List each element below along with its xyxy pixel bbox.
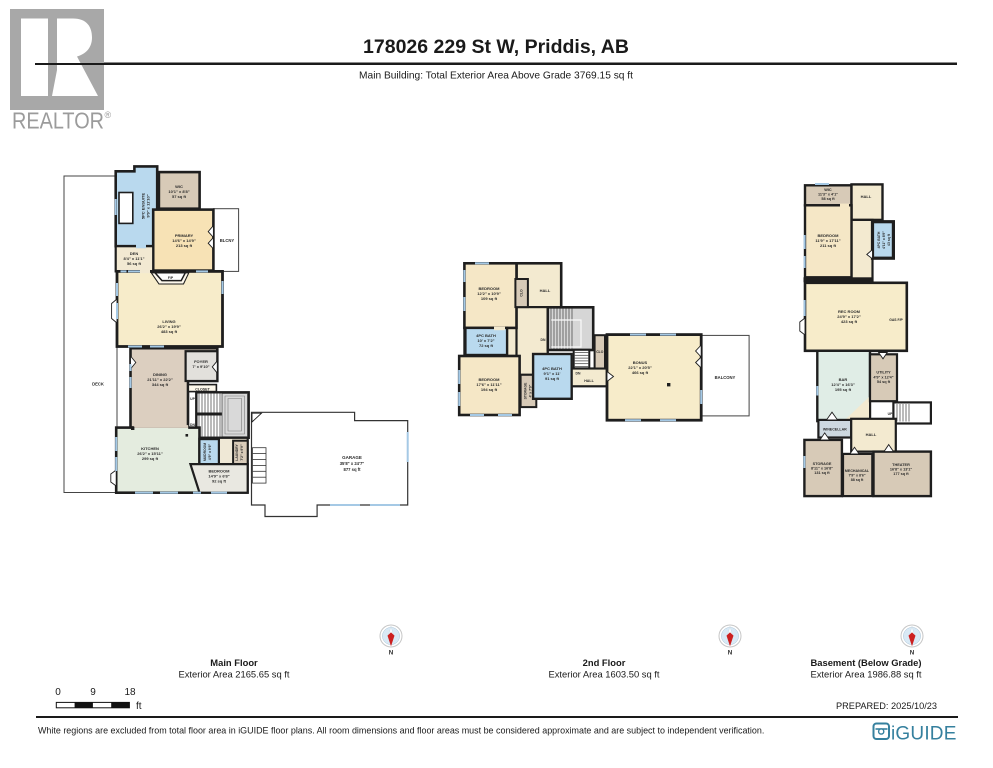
svg-text:211 sq ft: 211 sq ft: [820, 243, 837, 248]
svg-text:DECK: DECK: [92, 382, 104, 387]
svg-text:4'9" x 9'6": 4'9" x 9'6": [208, 444, 212, 461]
svg-text:9'9" x 11'10": 9'9" x 11'10": [146, 194, 151, 217]
svg-text:299 sq ft: 299 sq ft: [142, 456, 159, 461]
svg-text:18: 18: [124, 687, 136, 698]
svg-text:131 sq ft: 131 sq ft: [814, 471, 830, 475]
svg-text:BLCNY: BLCNY: [220, 238, 235, 243]
svg-text:CLO: CLO: [596, 350, 604, 354]
svg-text:43 sq ft: 43 sq ft: [887, 233, 891, 246]
svg-text:9: 9: [90, 687, 96, 698]
svg-text:109 sq ft: 109 sq ft: [481, 296, 498, 301]
svg-text:ft: ft: [136, 701, 142, 712]
svg-text:®: ®: [105, 110, 112, 120]
svg-text:GAS F/P: GAS F/P: [889, 318, 903, 322]
svg-text:178026 229 St W, Priddis, AB: 178026 229 St W, Priddis, AB: [363, 36, 629, 58]
svg-text:8'11" x 16'8": 8'11" x 16'8": [811, 467, 833, 471]
svg-text:213 sq ft: 213 sq ft: [176, 243, 193, 248]
svg-text:CLOSET: CLOSET: [195, 387, 210, 391]
svg-text:GARAGE: GARAGE: [342, 455, 362, 460]
svg-text:Exterior Area 2165.65 sq ft: Exterior Area 2165.65 sq ft: [178, 669, 289, 680]
svg-text:35'8" x 24'7": 35'8" x 24'7": [340, 461, 365, 466]
svg-text:White regions are excluded fro: White regions are excluded from total fl…: [38, 726, 764, 736]
svg-text:72 sq ft: 72 sq ft: [479, 343, 494, 348]
svg-text:877 sq ft: 877 sq ft: [344, 467, 362, 472]
svg-text:THEATER: THEATER: [892, 463, 910, 467]
svg-text:7'2" x 9'9": 7'2" x 9'9": [240, 444, 244, 461]
svg-text:DN: DN: [541, 338, 546, 342]
svg-text:195 sq ft: 195 sq ft: [835, 387, 852, 392]
svg-text:56 sq ft: 56 sq ft: [127, 261, 142, 266]
svg-text:4'11" x 8'9": 4'11" x 8'9": [882, 231, 886, 249]
svg-text:PREPARED: 2025/10/23: PREPARED: 2025/10/23: [836, 701, 937, 711]
svg-text:Main Floor: Main Floor: [210, 657, 258, 668]
svg-text:STORAGE: STORAGE: [813, 462, 832, 466]
svg-text:CLO: CLO: [520, 289, 524, 297]
svg-text:HALL: HALL: [866, 432, 877, 437]
svg-text:88 sq ft: 88 sq ft: [851, 478, 864, 482]
svg-text:iGUIDE: iGUIDE: [891, 724, 957, 745]
svg-text:483 sq ft: 483 sq ft: [161, 329, 178, 334]
svg-text:Basement (Below Grade): Basement (Below Grade): [811, 657, 922, 668]
svg-text:92 sq ft: 92 sq ft: [212, 479, 227, 484]
svg-text:WINECELLAR: WINECELLAR: [823, 428, 847, 432]
svg-text:MECHANICAL: MECHANICAL: [845, 469, 870, 473]
svg-text:UTILITY: UTILITY: [876, 371, 891, 375]
svg-text:58 sq ft: 58 sq ft: [821, 197, 835, 201]
svg-text:344 sq ft: 344 sq ft: [152, 382, 169, 387]
svg-text:466 sq ft: 466 sq ft: [632, 370, 649, 375]
svg-text:Exterior Area 1603.50 sq ft: Exterior Area 1603.50 sq ft: [548, 669, 659, 680]
svg-text:194 sq ft: 194 sq ft: [481, 387, 498, 392]
svg-text:0: 0: [55, 687, 61, 698]
svg-text:54 sq ft: 54 sq ft: [877, 380, 891, 384]
svg-text:4PC BATH: 4PC BATH: [877, 231, 881, 248]
svg-text:7'9" x 8'6": 7'9" x 8'6": [848, 473, 865, 477]
svg-text:WIC: WIC: [824, 188, 832, 192]
svg-text:91 sq ft: 91 sq ft: [545, 376, 560, 381]
svg-text:57 sq ft: 57 sq ft: [172, 194, 187, 199]
svg-text:DN: DN: [576, 372, 581, 376]
svg-text:STORAGE: STORAGE: [524, 382, 528, 399]
svg-text:16'8" x 13'1": 16'8" x 13'1": [890, 468, 912, 472]
svg-text:11'3" x 4'1": 11'3" x 4'1": [818, 193, 838, 197]
svg-text:HALL: HALL: [584, 379, 594, 383]
svg-text:HALL: HALL: [540, 288, 551, 293]
svg-text:MUDROOM: MUDROOM: [203, 443, 207, 461]
svg-text:UP: UP: [888, 412, 893, 416]
svg-text:2nd Floor: 2nd Floor: [583, 657, 626, 668]
svg-text:F/P: F/P: [168, 276, 174, 280]
svg-text:REALTOR: REALTOR: [12, 108, 104, 134]
svg-text:7' x 9'10": 7' x 9'10": [192, 364, 209, 369]
svg-text:BALCONY: BALCONY: [715, 375, 736, 380]
svg-text:HALL: HALL: [861, 194, 872, 199]
svg-text:423 sq ft: 423 sq ft: [841, 319, 858, 324]
svg-text:Exterior Area 1986.88 sq ft: Exterior Area 1986.88 sq ft: [810, 669, 921, 680]
svg-text:177 sq ft: 177 sq ft: [893, 472, 909, 476]
svg-text:4'9" x 12'4": 4'9" x 12'4": [873, 375, 893, 379]
svg-text:LAUNDRY: LAUNDRY: [235, 444, 239, 461]
svg-text:UP: UP: [190, 397, 195, 401]
svg-text:Main Building: Total Exterior: Main Building: Total Exterior Area Above…: [359, 71, 633, 82]
